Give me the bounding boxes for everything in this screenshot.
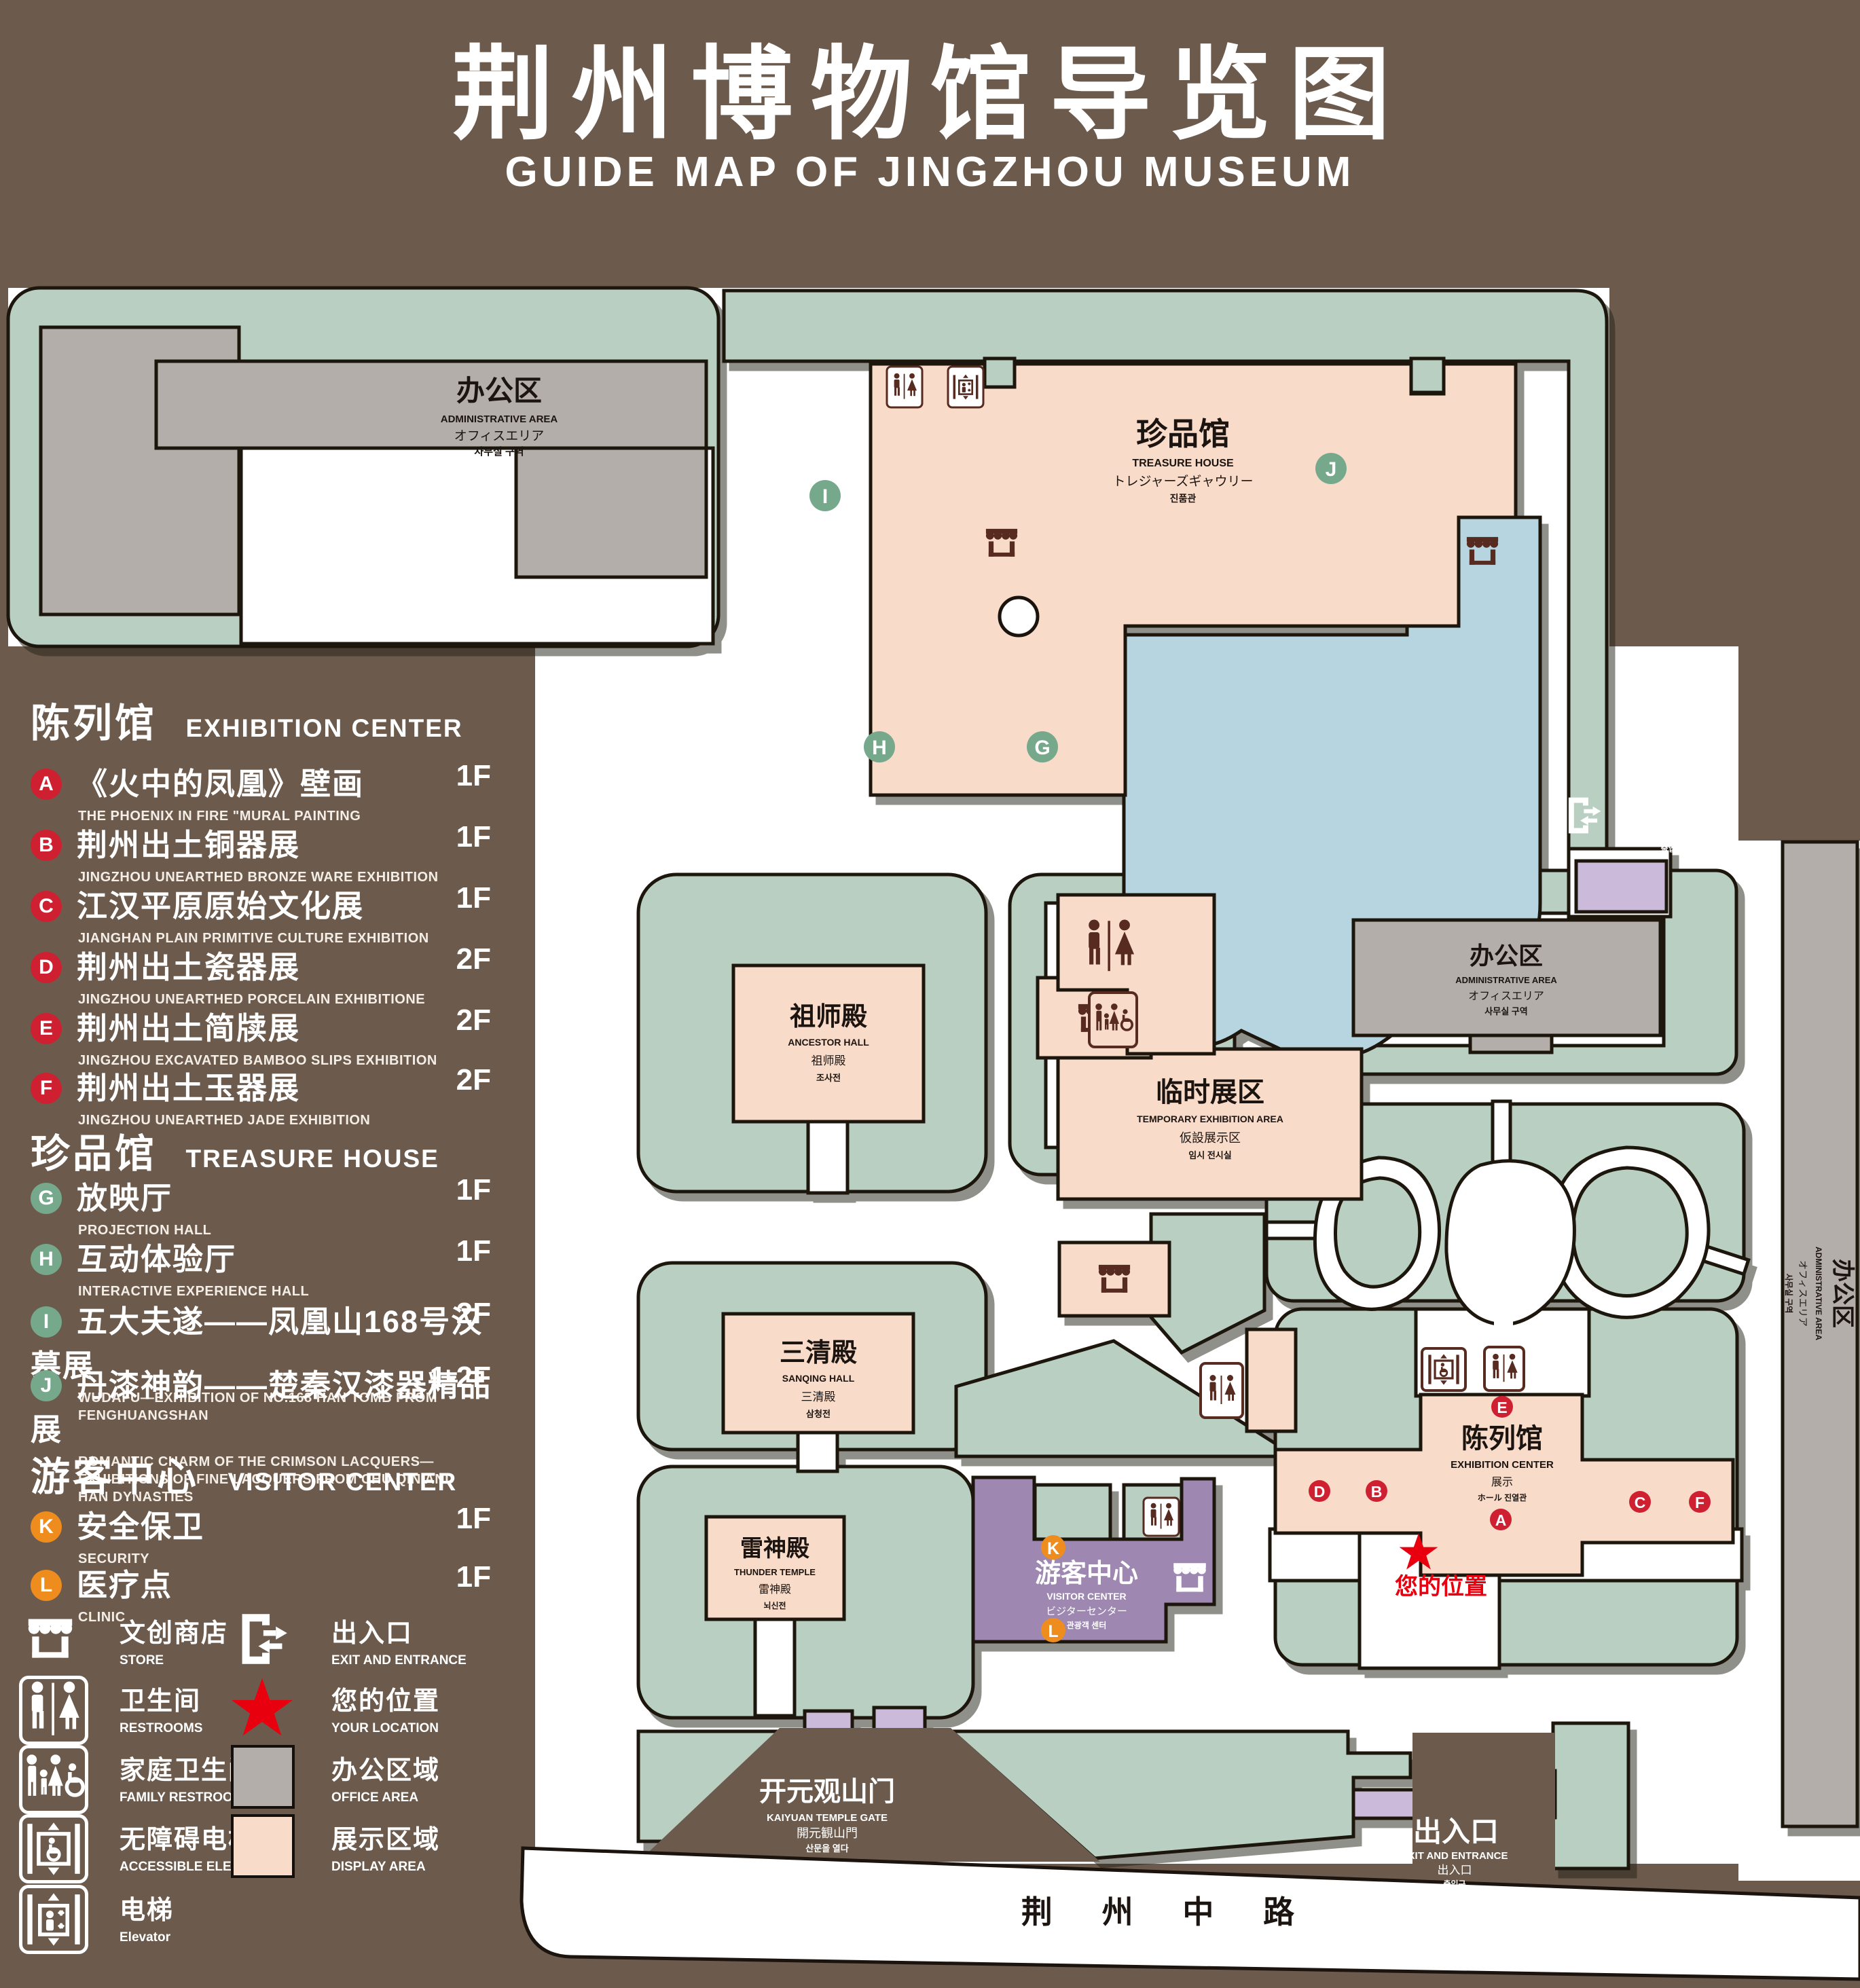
svg-text:トレジャーズギャウリー: トレジャーズギャウリー xyxy=(1112,474,1253,489)
display-area-swatch xyxy=(231,1814,295,1881)
gate-ne xyxy=(1576,861,1666,912)
family-restrooms-icon xyxy=(19,1745,88,1818)
legend-header-treasure: 珍品馆 TREASURE HOUSE xyxy=(31,1122,439,1179)
svg-text:办公区: 办公区 xyxy=(1829,1259,1855,1328)
page-subtitle: GUIDE MAP OF JINGZHOU MUSEUM xyxy=(0,148,1860,196)
svg-text:EXIT AND ENTRANCE: EXIT AND ENTRANCE xyxy=(1626,815,1718,825)
legend-item-C: C江汉平原原始文化展1F JIANGHAN PLAIN PRIMITIVE CU… xyxy=(31,881,499,947)
symbol-display-area: 展示区域DISPLAY AREA xyxy=(231,1814,503,1875)
svg-text:KAIYUAN TEMPLE GATE: KAIYUAN TEMPLE GATE xyxy=(767,1812,888,1824)
marker-F: F xyxy=(1689,1491,1711,1513)
legend-item-A: A《火中的凤凰》壁画1F THE PHOENIX IN FIRE "MURAL … xyxy=(31,759,499,825)
marker-badge-I: I xyxy=(31,1306,62,1338)
svg-text:L: L xyxy=(1048,1622,1058,1641)
marker-badge-E: E xyxy=(31,1013,62,1044)
accessible-elevator-icon xyxy=(19,1814,88,1887)
svg-text:開元観山門: 開元観山門 xyxy=(797,1826,858,1840)
elevator-icon xyxy=(19,1885,88,1957)
marker-C: C xyxy=(1629,1491,1651,1513)
svg-text:G: G xyxy=(1034,737,1050,759)
legend-header-visitor: 游客中心 VISITOR CENTER xyxy=(31,1445,457,1502)
restroom-icon xyxy=(887,367,922,407)
svg-text:办公区: 办公区 xyxy=(1470,942,1543,970)
svg-text:B: B xyxy=(1371,1483,1383,1501)
legend-item-B: B荆州出土铜器展1F JINGZHOU UNEARTHED BRONZE WAR… xyxy=(31,820,499,886)
svg-text:H: H xyxy=(872,737,887,759)
svg-text:J: J xyxy=(1326,458,1337,481)
svg-text:뇌신전: 뇌신전 xyxy=(763,1600,786,1610)
svg-text:임시 전시실: 임시 전시실 xyxy=(1188,1150,1231,1160)
marker-badge-C: C xyxy=(31,891,62,922)
office-nw-bar xyxy=(156,361,706,448)
symbol-office-area: 办公区域OFFICE AREA xyxy=(231,1745,503,1805)
building-temp-annex xyxy=(1247,1329,1296,1431)
marker-B: B xyxy=(1366,1480,1387,1502)
svg-text:办公区: 办公区 xyxy=(456,375,542,407)
svg-text:사무실 구역: 사무실 구역 xyxy=(474,446,524,458)
svg-text:三清殿: 三清殿 xyxy=(801,1391,836,1403)
svg-text:陈列馆: 陈列馆 xyxy=(1461,1424,1543,1454)
building-store-2 xyxy=(1059,1242,1169,1316)
svg-text:雷神殿: 雷神殿 xyxy=(740,1536,809,1562)
path-circle xyxy=(1000,597,1038,636)
legend-item-H: H互动体验厅1F INTERACTIVE EXPERIENCE HALL xyxy=(31,1234,499,1300)
svg-text:C: C xyxy=(1635,1494,1646,1511)
svg-text:산문을 열다: 산문을 열다 xyxy=(805,1843,848,1854)
svg-text:开元观山门: 开元观山门 xyxy=(759,1777,895,1807)
legend-item-F: F荆州出土玉器展2F JINGZHOU UNEARTHED JADE EXHIB… xyxy=(31,1063,499,1129)
marker-badge-K: K xyxy=(31,1511,62,1543)
marker-H: H xyxy=(864,731,895,762)
svg-text:출입구: 출입구 xyxy=(1443,1879,1465,1889)
svg-text:관광객 센터: 관광객 센터 xyxy=(1067,1620,1107,1630)
svg-text:TREASURE HOUSE: TREASURE HOUSE xyxy=(1132,458,1234,469)
legend-item-D: D荆州出土瓷器展2F JINGZHOU UNEARTHED PORCELAIN … xyxy=(31,942,499,1008)
marker-badge-F: F xyxy=(31,1073,62,1104)
svg-text:EXHIBITION CENTER: EXHIBITION CENTER xyxy=(1451,1459,1554,1471)
svg-text:オフィスエリア: オフィスエリア xyxy=(1798,1260,1808,1327)
marker-badge-G: G xyxy=(31,1183,62,1214)
svg-text:SANQING HALL: SANQING HALL xyxy=(782,1373,855,1384)
svg-text:三清殿: 三清殿 xyxy=(780,1339,857,1367)
marker-badge-H: H xyxy=(31,1244,62,1275)
svg-text:삼청전: 삼청전 xyxy=(806,1409,831,1419)
svg-text:E: E xyxy=(1497,1399,1507,1416)
svg-text:出入口: 出入口 xyxy=(1413,1816,1499,1847)
marker-badge-D: D xyxy=(31,952,62,983)
svg-text:珍品馆: 珍品馆 xyxy=(1136,416,1230,452)
svg-text:VISITOR CENTER: VISITOR CENTER xyxy=(1046,1591,1126,1602)
svg-text:ホール 진열관: ホール 진열관 xyxy=(1478,1492,1527,1503)
svg-text:オフィスエリア: オフィスエリア xyxy=(454,429,545,443)
legend-header-exhibition: 陈列馆 EXHIBITION CENTER xyxy=(31,691,463,748)
symbol-your-location: 您的位置YOUR LOCATION xyxy=(231,1676,503,1736)
svg-text:진품관: 진품관 xyxy=(1170,493,1197,504)
legend-item-K: K安全保卫1F SECURITY xyxy=(31,1502,499,1568)
restroom-icon xyxy=(1201,1363,1243,1418)
restroom-icon xyxy=(1144,1498,1179,1536)
svg-text:I: I xyxy=(822,485,828,508)
office-nw-arm xyxy=(516,448,706,577)
exit-icon xyxy=(231,1608,293,1674)
elevator-icon xyxy=(948,367,983,407)
symbol-family-restrooms: 家庭卫生间FAMILY RESTROOMS xyxy=(19,1745,243,1805)
legend-item-G: G放映厅1F PROJECTION HALL xyxy=(31,1173,499,1239)
svg-text:ADMINISTRATIVE AREA: ADMINISTRATIVE AREA xyxy=(441,413,558,425)
symbol-exit: 出入口EXIT AND ENTRANCE xyxy=(231,1608,503,1668)
marker-E: E xyxy=(1491,1396,1513,1418)
svg-text:祖师殿: 祖师殿 xyxy=(790,1003,867,1031)
restrooms-icon xyxy=(19,1676,88,1748)
svg-text:雷神殿: 雷神殿 xyxy=(759,1583,791,1596)
svg-text:TEMPORARY EXHIBITION AREA: TEMPORARY EXHIBITION AREA xyxy=(1137,1113,1283,1124)
restroom-icon xyxy=(1484,1347,1524,1391)
svg-text:仮設展示区: 仮設展示区 xyxy=(1180,1131,1241,1145)
svg-text:출입구: 출입구 xyxy=(1660,843,1683,853)
svg-text:ADMINISTRATIVE AREA: ADMINISTRATIVE AREA xyxy=(1455,975,1557,985)
page-title: 荆州博物馆导览图 xyxy=(0,12,1860,160)
family-restroom-icon xyxy=(1089,993,1137,1047)
marker-A: A xyxy=(1490,1509,1512,1530)
office-area-swatch xyxy=(231,1745,295,1812)
legend-item-E: E荆州出土简牍展2F JINGZHOU EXCAVATED BAMBOO SLI… xyxy=(31,1004,499,1069)
symbol-store: 文创商店STORE xyxy=(19,1608,243,1668)
marker-badge-B: B xyxy=(31,830,62,861)
marker-badge-L: L xyxy=(31,1570,62,1601)
svg-text:THUNDER TEMPLE: THUNDER TEMPLE xyxy=(734,1567,816,1577)
marker-I: I xyxy=(809,480,841,511)
svg-text:A: A xyxy=(1495,1511,1507,1529)
marker-J: J xyxy=(1315,453,1347,484)
marker-badge-A: A xyxy=(31,769,62,800)
svg-text:游客中心: 游客中心 xyxy=(1035,1559,1138,1588)
svg-text:K: K xyxy=(1047,1539,1059,1558)
location-star-icon xyxy=(231,1676,293,1742)
svg-text:EXIT AND ENTRANCE: EXIT AND ENTRANCE xyxy=(1402,1850,1508,1862)
svg-text:临时展区: 临时展区 xyxy=(1156,1078,1264,1107)
svg-text:F: F xyxy=(1695,1494,1704,1511)
office-east-tab xyxy=(1470,1035,1552,1052)
svg-text:사무실 구역: 사무실 구역 xyxy=(1784,1274,1794,1314)
marker-K: K xyxy=(1041,1535,1065,1560)
store-icon xyxy=(19,1608,81,1674)
your-location-label: 您的位置 xyxy=(1395,1574,1487,1600)
svg-text:사무실 구역: 사무실 구역 xyxy=(1484,1006,1527,1016)
marker-L: L xyxy=(1041,1618,1065,1642)
symbol-elevator: 电梯Elevator xyxy=(19,1885,243,1945)
symbol-restrooms: 卫生间RESTROOMS xyxy=(19,1676,243,1736)
legend-panel: 陈列馆 EXHIBITION CENTER A《火中的凤凰》壁画1F THE P… xyxy=(0,672,536,1988)
svg-text:出入口: 出入口 xyxy=(1438,1864,1472,1877)
road-label: 荆 州 中 路 xyxy=(1021,1894,1315,1930)
svg-text:展示: 展示 xyxy=(1491,1477,1513,1488)
svg-text:出入口: 出入口 xyxy=(1635,782,1709,810)
svg-text:ADMINISTRATIVE AREA: ADMINISTRATIVE AREA xyxy=(1814,1247,1823,1340)
accessible-elevator-icon xyxy=(1422,1348,1465,1391)
marker-badge-J: J xyxy=(31,1370,62,1401)
svg-text:祖师殿: 祖师殿 xyxy=(812,1054,846,1067)
marker-D: D xyxy=(1309,1480,1330,1502)
svg-text:出入口: 出入口 xyxy=(1656,828,1688,841)
svg-text:ANCESTOR HALL: ANCESTOR HALL xyxy=(788,1037,869,1048)
svg-text:D: D xyxy=(1314,1483,1326,1501)
svg-text:オフィスエリア: オフィスエリア xyxy=(1468,991,1544,1002)
marker-G: G xyxy=(1027,731,1058,762)
symbol-accessible-elevator: 无障碍电梯ACCESSIBLE ELEVATOR xyxy=(19,1814,243,1875)
svg-text:조사전: 조사전 xyxy=(816,1073,841,1083)
svg-text:ビジターセンター: ビジターセンター xyxy=(1046,1606,1127,1617)
